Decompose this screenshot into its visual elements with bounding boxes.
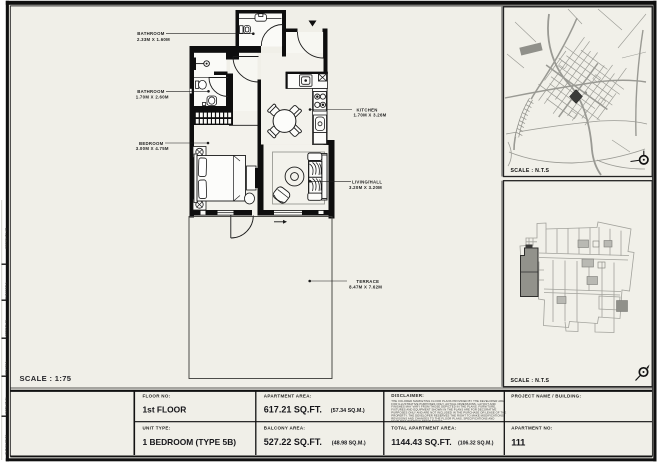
svg-text:(57.34 SQ.M.): (57.34 SQ.M.) (331, 408, 365, 414)
svg-text:1.70M X 3.26M: 1.70M X 3.26M (354, 113, 387, 118)
svg-text:DISCLAIMER:: DISCLAIMER: (391, 393, 424, 398)
svg-text:PROJECT NAME / BUILDING:: PROJECT NAME / BUILDING: (511, 394, 581, 399)
svg-text:1st FLOOR: 1st FLOOR (143, 405, 187, 415)
svg-text:SCALE : N.T.S: SCALE : N.T.S (511, 168, 550, 174)
svg-text:1 BEDROOM (TYPE 5B): 1 BEDROOM (TYPE 5B) (143, 437, 237, 447)
svg-text:3.00M X 4.75M: 3.00M X 4.75M (136, 146, 169, 151)
svg-text:BEDROOM: BEDROOM (139, 141, 164, 146)
svg-text:527.22 SQ.FT.: 527.22 SQ.FT. (264, 437, 322, 447)
svg-text:TERRACE: TERRACE (356, 279, 379, 284)
svg-text:DATE 05 21: DATE 05 21 (4, 397, 8, 414)
svg-text:8.47M X 7.62M: 8.47M X 7.62M (349, 285, 382, 290)
svg-text:2.33M X 1.60M: 2.33M X 1.60M (137, 37, 170, 42)
svg-text:FEATURES WITHOUT PRIOR NOTICE.: FEATURES WITHOUT PRIOR NOTICE. (391, 419, 444, 423)
svg-text:(106.32 SQ.M.): (106.32 SQ.M.) (458, 441, 494, 447)
svg-text:(48.98 SQ.M.): (48.98 SQ.M.) (332, 441, 366, 447)
svg-text:APPRVD JS: APPRVD JS (4, 320, 8, 337)
svg-text:SCALE : N.T.S: SCALE : N.T.S (511, 378, 550, 384)
svg-text:3.20M X 3.20M: 3.20M X 3.20M (349, 185, 382, 190)
svg-text:1.70M X 2.60M: 1.70M X 2.60M (136, 94, 169, 99)
svg-text:LIVING/HALL: LIVING/HALL (352, 180, 382, 185)
svg-text:1144.43 SQ.FT.: 1144.43 SQ.FT. (391, 437, 451, 447)
svg-text:FLOOR NO:: FLOOR NO: (143, 394, 171, 399)
svg-text:BATHROOM: BATHROOM (137, 31, 165, 36)
svg-text:BATHROOM: BATHROOM (137, 89, 165, 94)
svg-text:CHECKED A: CHECKED A (4, 282, 8, 299)
svg-text:111: 111 (511, 437, 525, 448)
svg-text:REV 02 A: REV 02 A (4, 361, 8, 374)
svg-text:BALCONY AREA:: BALCONY AREA: (264, 425, 306, 430)
svg-text:617.21 SQ.FT.: 617.21 SQ.FT. (264, 405, 322, 415)
svg-text:DRAWN BY AB: DRAWN BY AB (4, 228, 8, 249)
svg-text:TOTAL APARTMENT AREA:: TOTAL APARTMENT AREA: (391, 425, 456, 430)
svg-text:APARTMENT AREA:: APARTMENT AREA: (264, 394, 312, 399)
svg-text:SHT 02 OF 02: SHT 02 OF 02 (4, 435, 8, 455)
svg-text:SCALE : 1:75: SCALE : 1:75 (20, 374, 72, 383)
svg-text:UNIT TYPE:: UNIT TYPE: (143, 425, 171, 430)
svg-text:APARTMENT NO:: APARTMENT NO: (511, 425, 553, 430)
